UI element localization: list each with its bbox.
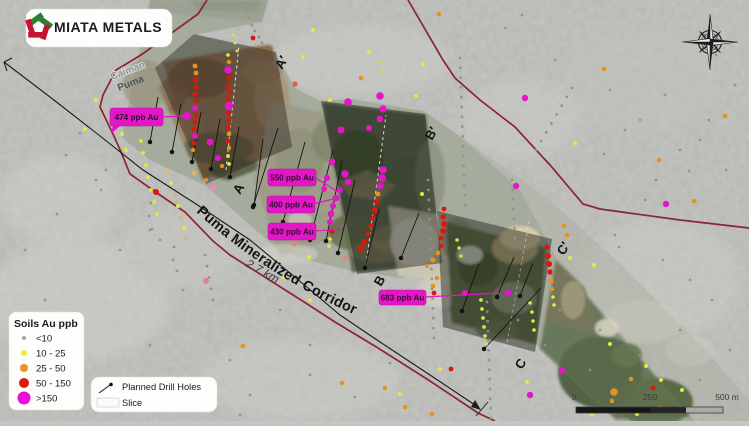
- svg-text:<10: <10: [36, 334, 52, 345]
- svg-text:250: 250: [643, 392, 657, 402]
- svg-text:500 m: 500 m: [715, 392, 739, 402]
- svg-text:Slice: Slice: [122, 398, 142, 408]
- svg-text:0: 0: [572, 392, 577, 402]
- svg-text:10 - 25: 10 - 25: [36, 349, 66, 360]
- svg-text:25 - 50: 25 - 50: [36, 364, 66, 375]
- svg-text:683 ppb Au: 683 ppb Au: [381, 294, 425, 303]
- svg-text:400 ppb Au: 400 ppb Au: [269, 201, 313, 210]
- svg-text:>150: >150: [36, 394, 57, 405]
- svg-text:50 - 150: 50 - 150: [36, 379, 71, 390]
- svg-text:550 ppb Au: 550 ppb Au: [270, 174, 314, 183]
- svg-text:Planned Drill Holes: Planned Drill Holes: [122, 382, 201, 392]
- svg-text:MIATA METALS: MIATA METALS: [54, 19, 162, 35]
- svg-text:474 ppb Au: 474 ppb Au: [115, 113, 159, 122]
- svg-text:430 ppb Au: 430 ppb Au: [270, 228, 314, 237]
- svg-text:Soils Au ppb: Soils Au ppb: [14, 318, 78, 330]
